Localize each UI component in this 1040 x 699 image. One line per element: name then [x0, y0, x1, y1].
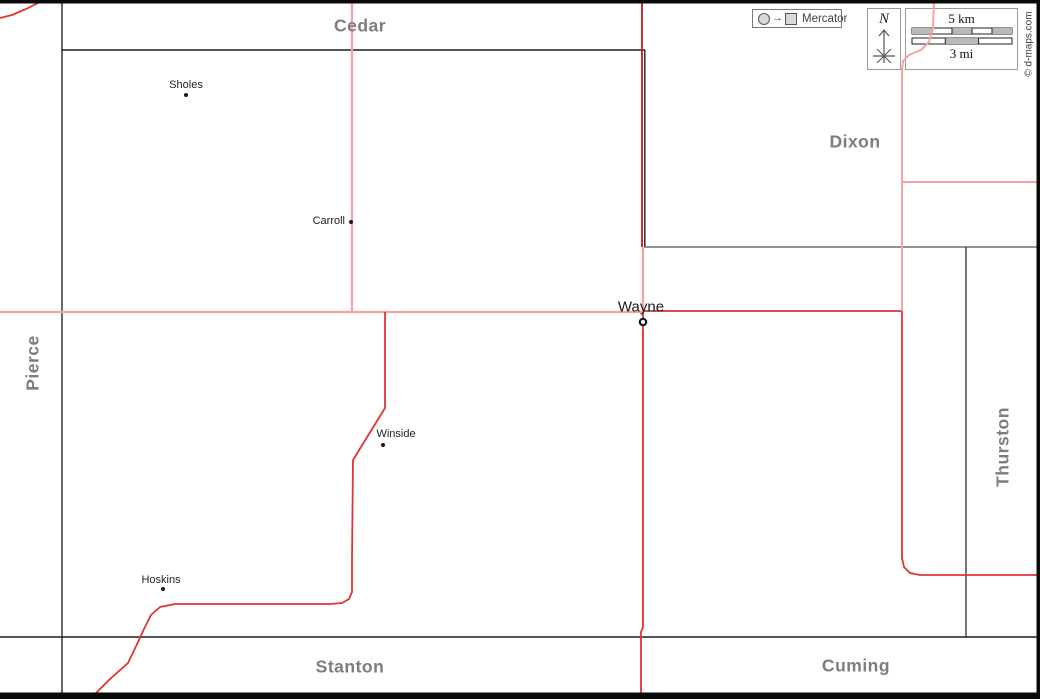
compass-arrow-icon [868, 27, 900, 69]
mi-scale-bar [911, 37, 1013, 45]
projection-legend: → Mercator [752, 9, 842, 28]
km-scale-bar [911, 27, 1013, 35]
copyright-text: © d-maps.com [1024, 11, 1035, 76]
globe-circle-icon [758, 13, 770, 25]
compass-rose: N [867, 8, 901, 70]
scale-mi-label: 3 mi [906, 47, 1017, 60]
scale-km-label: 5 km [906, 12, 1017, 25]
scale-box: 5 km 3 mi [905, 8, 1018, 70]
county-map: → Mercator N 5 km [0, 0, 1040, 699]
projection-name: Mercator [802, 13, 847, 25]
arrow-right-icon: → [772, 13, 783, 24]
projection-square-icon [785, 13, 797, 25]
north-label: N [868, 12, 900, 27]
